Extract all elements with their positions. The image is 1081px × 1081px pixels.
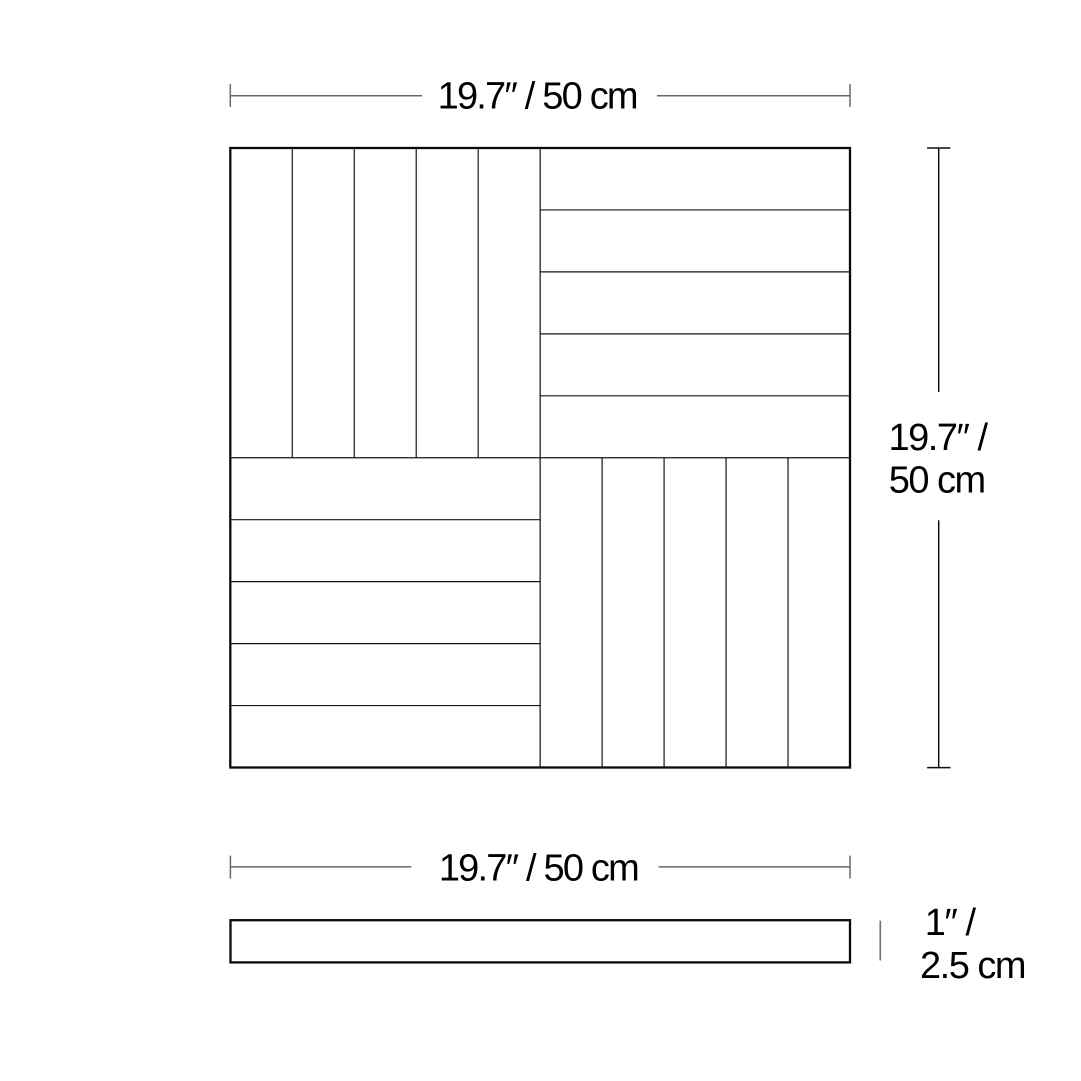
svg-text:19.7″ / 50 cm: 19.7″ / 50 cm: [439, 847, 638, 889]
svg-text:19.7″ /: 19.7″ /: [889, 417, 989, 459]
svg-text:19.7″ / 50 cm: 19.7″ / 50 cm: [438, 76, 637, 118]
svg-text:50 cm: 50 cm: [889, 459, 985, 501]
svg-text:2.5 cm: 2.5 cm: [920, 945, 1025, 987]
svg-text:1″ /: 1″ /: [925, 902, 977, 944]
